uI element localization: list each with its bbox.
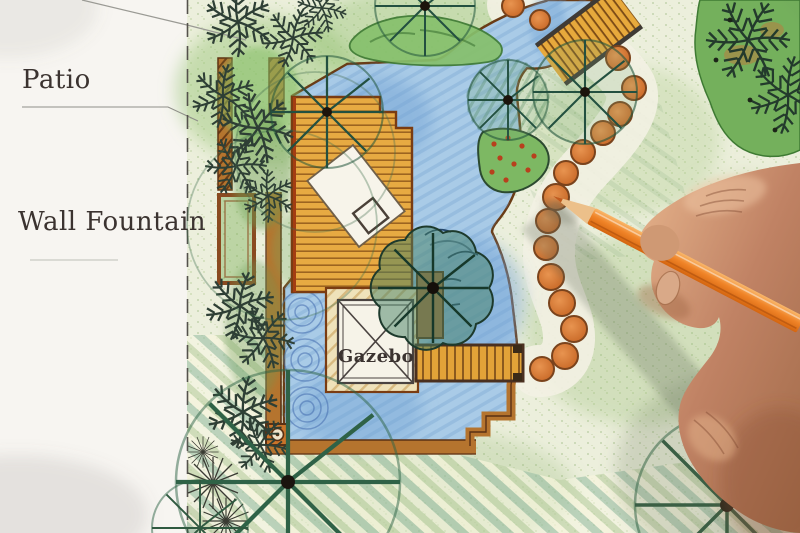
wall-fountain-label: Wall Fountain <box>18 207 206 237</box>
patio-label: Patio <box>22 65 91 95</box>
garden-plan-canvas: Gazebo <box>0 0 800 533</box>
landscape-plan-photo: Gazebo <box>0 0 800 533</box>
